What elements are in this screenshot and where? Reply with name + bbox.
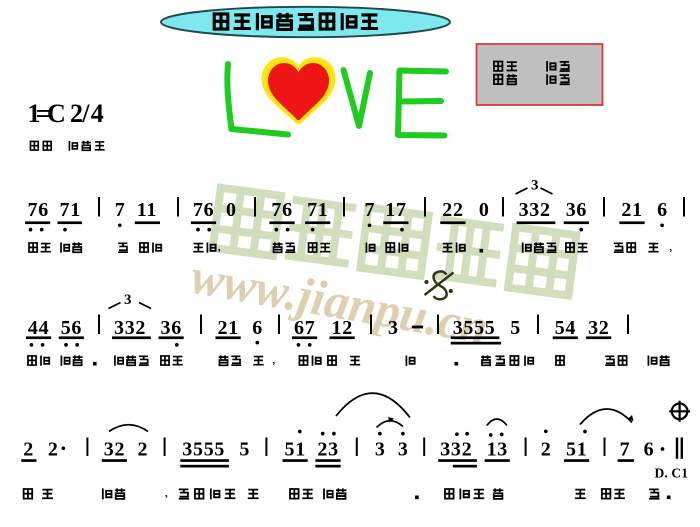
svg-text:332: 332 (114, 317, 146, 339)
svg-text:3: 3 (531, 178, 539, 194)
svg-text:332: 332 (440, 439, 472, 461)
svg-text:51: 51 (566, 439, 587, 461)
svg-text:32: 32 (104, 439, 125, 461)
svg-text:22: 22 (442, 199, 463, 221)
svg-text:7: 7 (115, 199, 126, 221)
svg-text:71: 71 (307, 199, 328, 221)
svg-text:0: 0 (479, 199, 490, 221)
svg-text:6: 6 (644, 439, 655, 461)
svg-text:C: C (47, 99, 66, 128)
svg-text:36: 36 (161, 317, 182, 339)
svg-text:2: 2 (138, 439, 149, 461)
svg-text:32: 32 (588, 317, 609, 339)
svg-text:2: 2 (23, 439, 34, 461)
svg-text:76: 76 (193, 199, 214, 221)
svg-text:67: 67 (294, 317, 315, 339)
svg-text:51: 51 (285, 439, 306, 461)
svg-text:56: 56 (61, 317, 82, 339)
svg-text:7: 7 (365, 199, 376, 221)
svg-text:12: 12 (332, 317, 353, 339)
svg-text:3: 3 (375, 439, 386, 461)
svg-text:3: 3 (124, 292, 132, 308)
svg-text:21: 21 (621, 199, 642, 221)
svg-text:/: / (81, 99, 90, 128)
svg-text:76: 76 (271, 199, 292, 221)
svg-text:3: 3 (398, 439, 409, 461)
svg-text:2: 2 (48, 439, 59, 461)
svg-text:0: 0 (226, 199, 237, 221)
svg-text:3: 3 (388, 317, 399, 339)
svg-text:23: 23 (317, 439, 338, 461)
svg-text:21: 21 (218, 317, 239, 339)
svg-text:2: 2 (541, 439, 552, 461)
svg-text:36: 36 (566, 199, 587, 221)
svg-text:71: 71 (60, 199, 81, 221)
svg-text:17: 17 (385, 199, 406, 221)
svg-text:6: 6 (252, 317, 263, 339)
svg-text:44: 44 (28, 317, 49, 339)
svg-text:7: 7 (620, 439, 631, 461)
svg-text:5: 5 (510, 317, 521, 339)
svg-text:D. C1: D. C1 (655, 466, 689, 481)
svg-text:76: 76 (28, 199, 49, 221)
svg-text:54: 54 (555, 317, 576, 339)
svg-text:332: 332 (519, 199, 551, 221)
svg-text:3555: 3555 (182, 439, 225, 461)
svg-text:2: 2 (70, 99, 83, 128)
svg-text:13: 13 (487, 439, 508, 461)
svg-text:3555: 3555 (453, 317, 496, 339)
svg-text:11: 11 (137, 199, 157, 221)
svg-text:5: 5 (239, 439, 250, 461)
svg-text:6: 6 (657, 199, 668, 221)
svg-text:4: 4 (91, 99, 104, 128)
